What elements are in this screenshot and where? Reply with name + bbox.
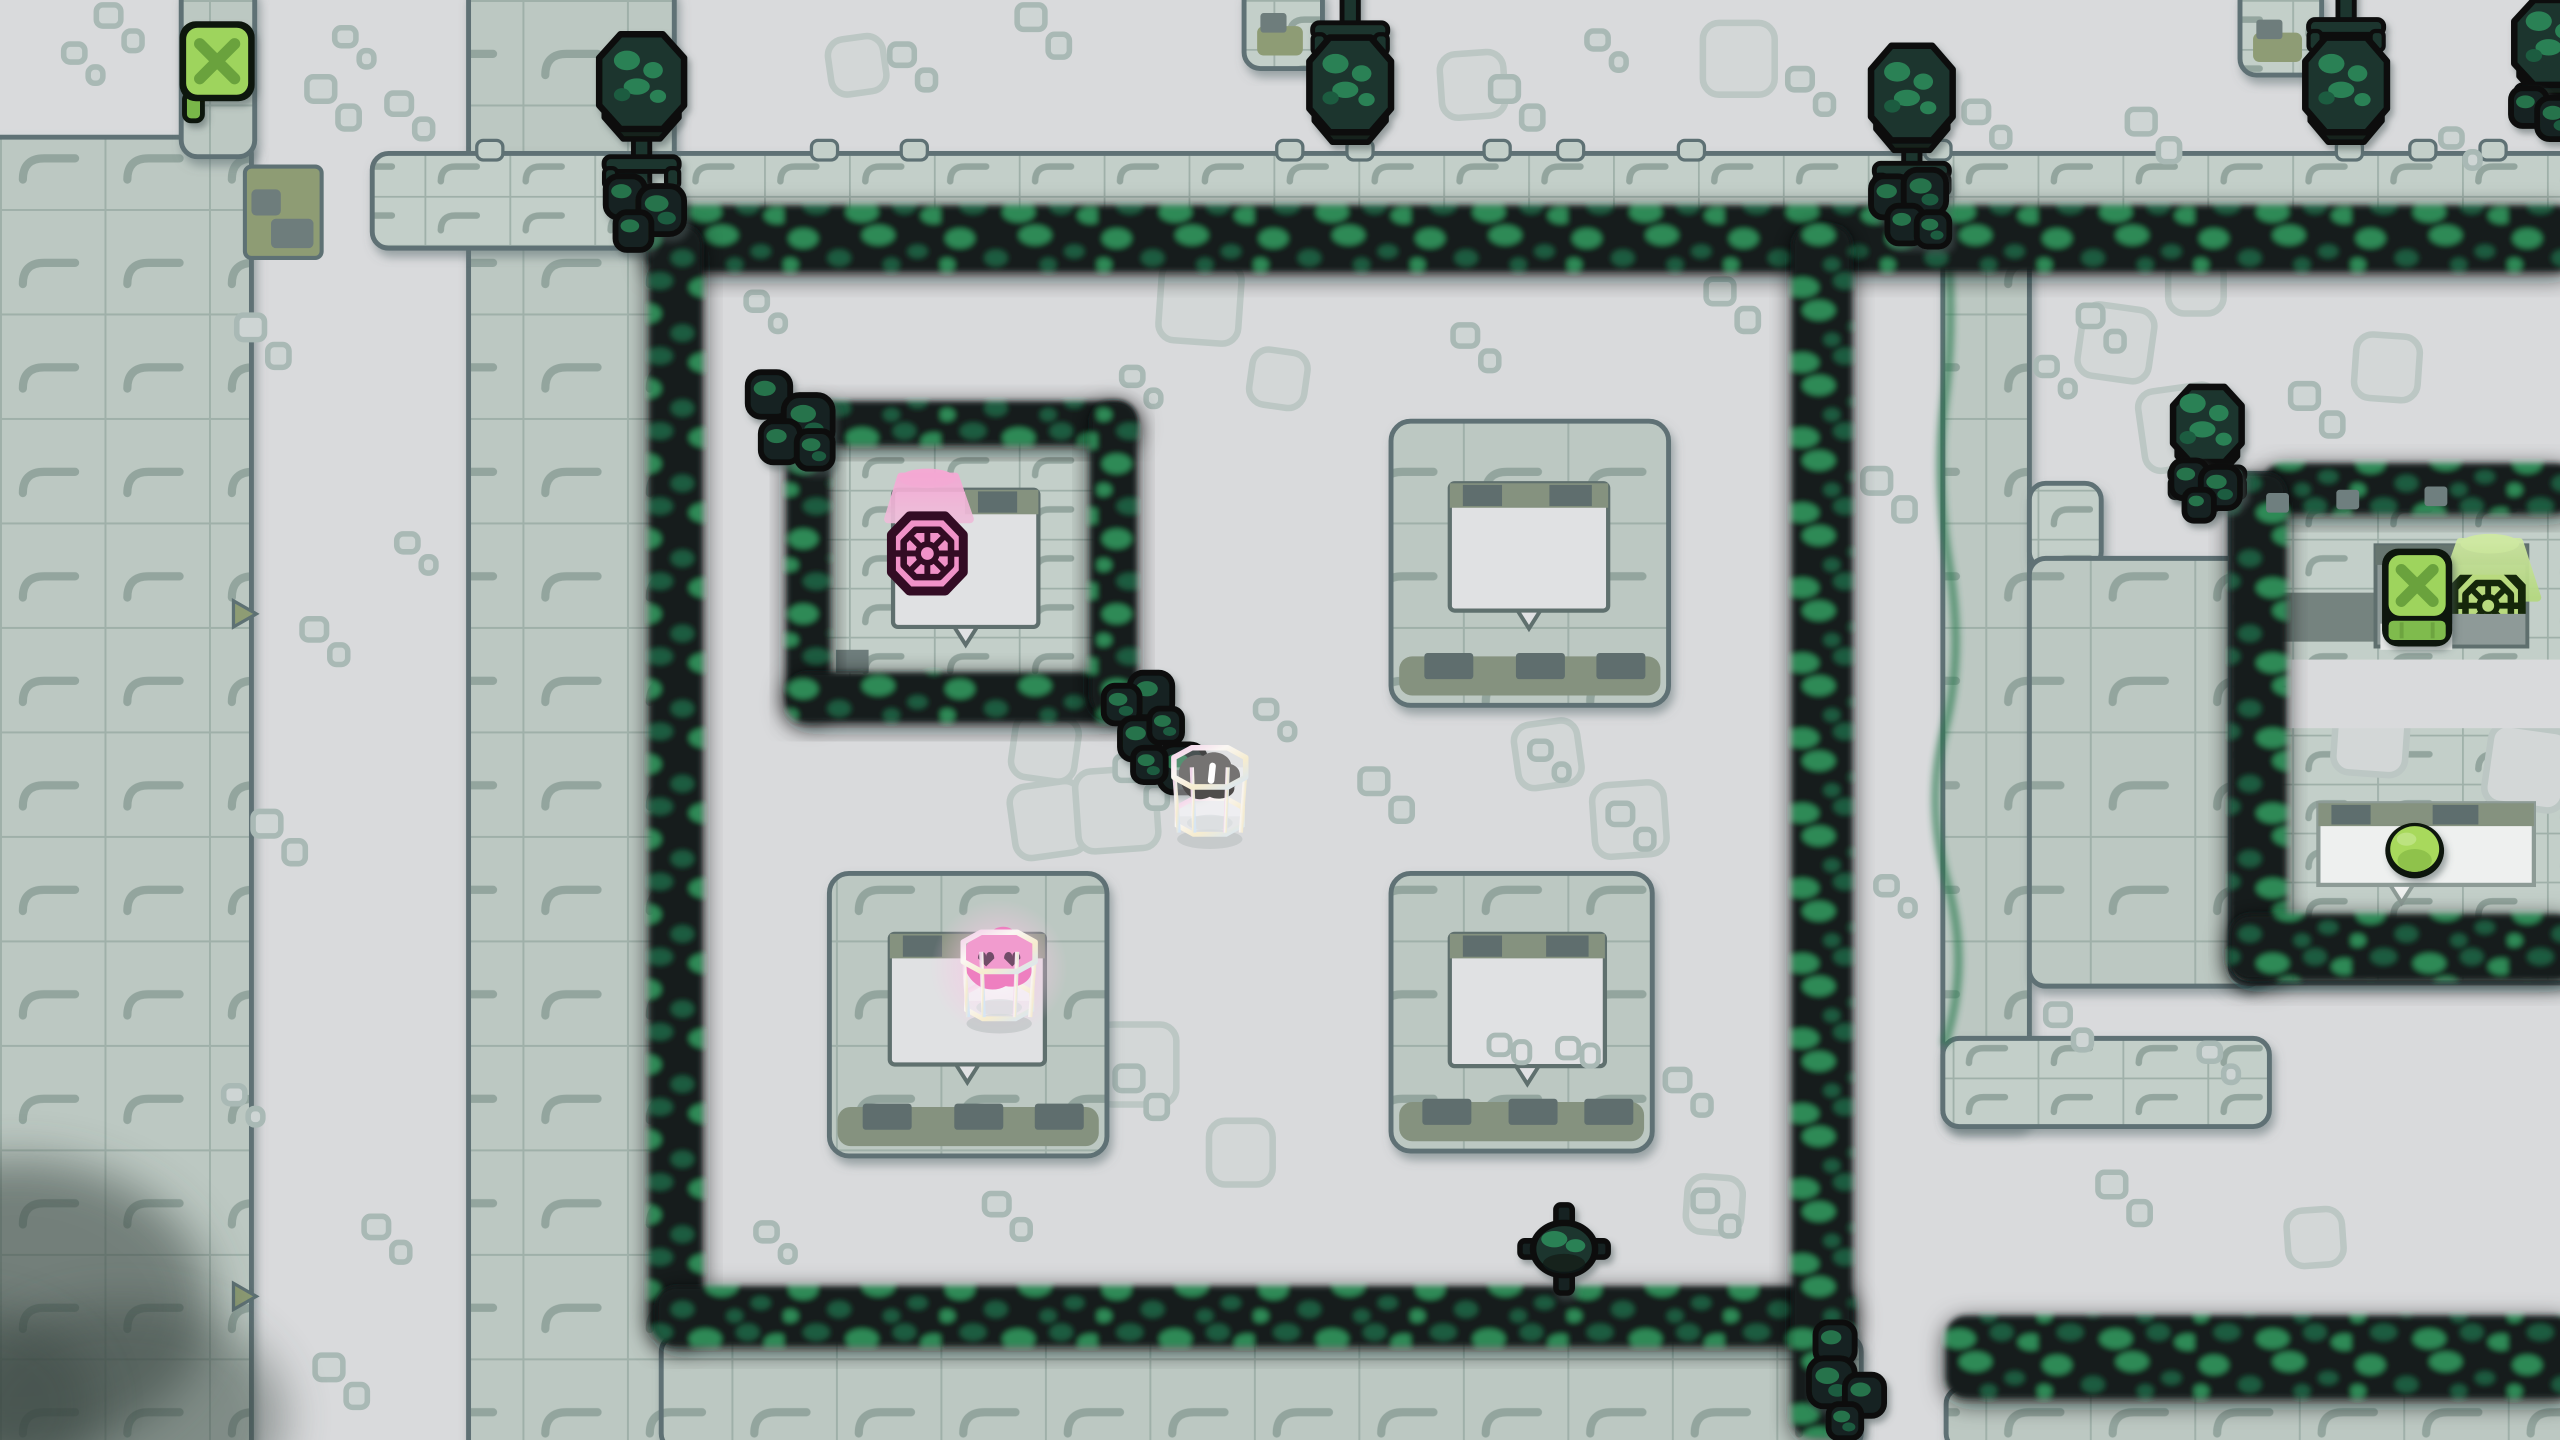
caged-pink-creature[interactable] — [931, 900, 1068, 1037]
wall-notch — [2336, 490, 2359, 510]
hedge-main-right — [1793, 225, 1852, 1436]
wall-notch — [1484, 140, 1510, 160]
tree — [1309, 0, 1391, 142]
flagstone — [2482, 722, 2560, 812]
flagstone — [1009, 712, 1081, 784]
game-viewport[interactable] — [0, 0, 2560, 1440]
hedge-green-top — [2263, 464, 2560, 513]
flagstone — [1703, 23, 1775, 95]
green-ball[interactable] — [2385, 823, 2444, 879]
wall-notch — [477, 140, 503, 160]
hedge-main-left — [650, 225, 702, 1338]
stone-platform — [2029, 483, 2101, 568]
wall-notch — [2424, 487, 2447, 507]
wall-notch — [901, 140, 927, 160]
hedge-wall — [1091, 402, 1137, 715]
flagstone — [2353, 333, 2421, 401]
wall-notch — [2410, 140, 2436, 160]
wall-notch — [811, 140, 837, 160]
wall-notch — [2266, 493, 2289, 513]
sunken-pit-platform — [1391, 421, 1669, 705]
pink-octagon-token[interactable] — [891, 516, 963, 591]
flagstone — [2285, 1208, 2344, 1267]
hedge-wall — [787, 673, 1136, 722]
hedge-main-bottom — [656, 1287, 1854, 1346]
wall-notch — [2480, 140, 2506, 160]
flagstone — [826, 34, 889, 97]
stone-block — [836, 650, 869, 673]
hedge-wall — [787, 402, 1136, 444]
hedge-green-left — [2230, 473, 2286, 979]
hedge-green-bottom — [2230, 914, 2560, 979]
stone-platform — [2029, 558, 2261, 986]
sunken-pit-platform — [1391, 873, 1652, 1151]
wall-notch — [1277, 140, 1303, 160]
wall-notch — [1558, 140, 1584, 160]
caged-grey-creature[interactable] — [1174, 748, 1246, 849]
flagstone — [1209, 1121, 1273, 1185]
green-x-block-tall[interactable] — [2382, 549, 2452, 647]
stone-platform — [661, 1336, 1861, 1440]
hedge-top — [647, 206, 2560, 271]
tree — [2305, 0, 2387, 142]
flagstone — [1157, 259, 1242, 344]
hedge-bottom-right — [1946, 1316, 2560, 1398]
wall-notch — [1678, 140, 1704, 160]
flagstone — [1247, 347, 1310, 410]
game-scene — [0, 0, 2560, 1440]
